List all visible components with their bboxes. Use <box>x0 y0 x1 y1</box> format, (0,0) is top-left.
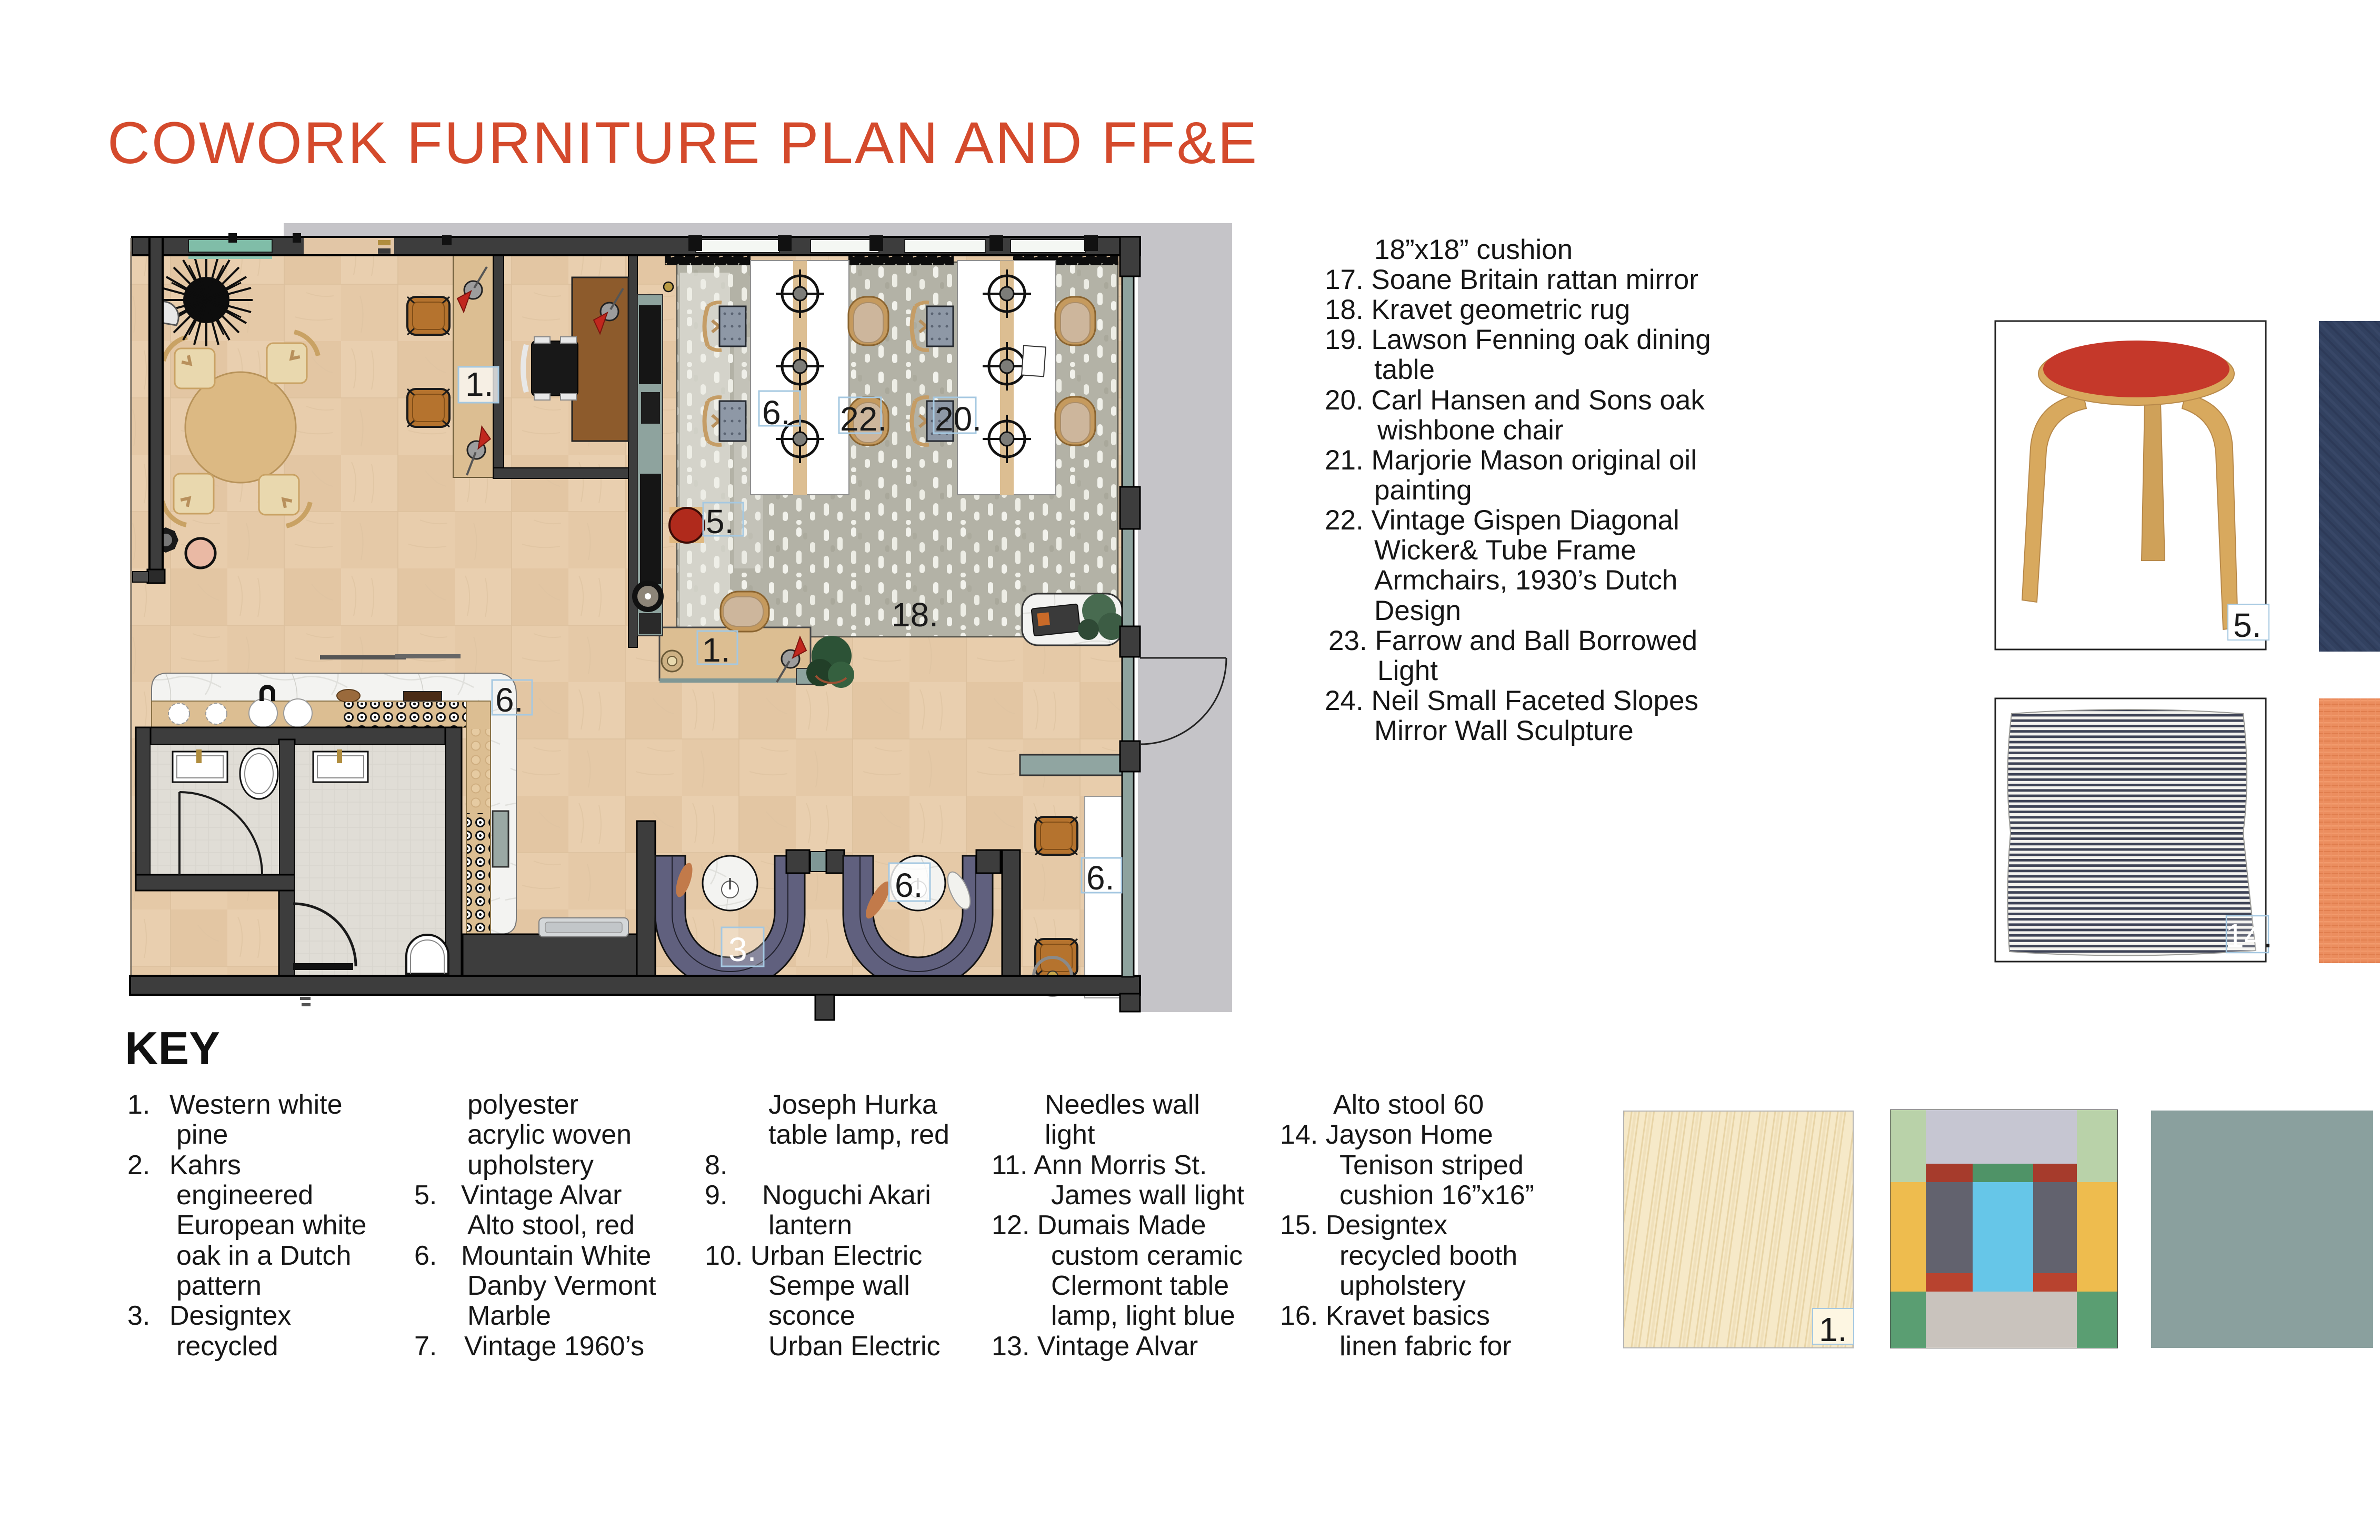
svg-text:pattern: pattern <box>176 1271 262 1301</box>
svg-text:cushion 16”x16”: cushion 16”x16” <box>1339 1180 1534 1211</box>
svg-text:7.: 7. <box>414 1331 437 1362</box>
svg-text:18. Kravet geometric rug: 18. Kravet geometric rug <box>1325 294 1630 325</box>
svg-text:Designtex: Designtex <box>169 1301 291 1331</box>
svg-text:lantern: lantern <box>768 1210 852 1241</box>
svg-text:recycled booth: recycled booth <box>1339 1241 1517 1271</box>
svg-text:20.: 20. <box>935 400 982 438</box>
svg-text:.: . <box>2263 917 2273 955</box>
svg-text:3.: 3. <box>728 931 756 968</box>
svg-text:pine: pine <box>176 1119 228 1150</box>
svg-text:Danby Vermont: Danby Vermont <box>467 1271 656 1301</box>
svg-text:10. Urban Electric: 10. Urban Electric <box>705 1241 922 1271</box>
svg-text:11. Ann Morris St.: 11. Ann Morris St. <box>992 1150 1207 1181</box>
svg-text:Light: Light <box>1377 655 1438 686</box>
svg-text:22.: 22. <box>840 400 887 438</box>
svg-text:Marble: Marble <box>467 1301 551 1331</box>
svg-text:lamp, light blue: lamp, light blue <box>1051 1301 1235 1331</box>
svg-text:Mirror Wall Sculpture: Mirror Wall Sculpture <box>1374 715 1634 746</box>
svg-text:wishbone chair: wishbone chair <box>1377 415 1564 446</box>
svg-text:Western white: Western white <box>169 1089 343 1120</box>
svg-text:custom ceramic: custom ceramic <box>1051 1241 1243 1271</box>
svg-text:6.: 6. <box>895 866 923 904</box>
svg-text:6.: 6. <box>1086 859 1114 897</box>
svg-text:Clermont table: Clermont table <box>1051 1271 1229 1301</box>
svg-text:Noguchi Akari: Noguchi Akari <box>762 1180 931 1211</box>
svg-text:3.: 3. <box>127 1301 150 1331</box>
svg-text:12. Dumais Made: 12. Dumais Made <box>992 1210 1206 1241</box>
svg-text:17. Soane Britain rattan mirro: 17. Soane Britain rattan mirror <box>1325 264 1698 295</box>
svg-text:21. Marjorie Mason original oi: 21. Marjorie Mason original oil <box>1325 445 1697 476</box>
svg-text:5.: 5. <box>706 503 734 541</box>
svg-text:COWORK FURNITURE PLAN AND FF&E: COWORK FURNITURE PLAN AND FF&E <box>107 110 1258 176</box>
svg-text:European white: European white <box>176 1210 366 1241</box>
svg-text:18”x18” cushion: 18”x18” cushion <box>1374 234 1573 265</box>
svg-text:1.: 1. <box>127 1089 150 1120</box>
svg-text:5.: 5. <box>2233 606 2261 644</box>
svg-text:upholstery: upholstery <box>1339 1271 1466 1301</box>
svg-text:Needles wall: Needles wall <box>1045 1089 1200 1120</box>
svg-text:6.: 6. <box>762 394 790 432</box>
svg-text:Sempe wall: Sempe wall <box>768 1271 910 1301</box>
svg-text:24. Neil Small Faceted Slopes: 24. Neil Small Faceted Slopes <box>1325 685 1698 716</box>
svg-text:oak in a Dutch: oak in a Dutch <box>176 1241 351 1271</box>
svg-text:table lamp, red: table lamp, red <box>768 1119 949 1150</box>
svg-text:Vintage Alvar: Vintage Alvar <box>461 1180 622 1211</box>
svg-text:Joseph Hurka: Joseph Hurka <box>768 1089 937 1120</box>
svg-text:Alto stool, red: Alto stool, red <box>467 1210 635 1241</box>
svg-text:recycled: recycled <box>176 1331 278 1362</box>
svg-text:polyester: polyester <box>467 1089 578 1120</box>
svg-text:1.: 1. <box>1819 1311 1847 1348</box>
svg-text:Tenison striped: Tenison striped <box>1339 1150 1524 1181</box>
svg-text:22. Vintage Gispen Diagonal: 22. Vintage Gispen Diagonal <box>1325 505 1679 536</box>
svg-text:8.: 8. <box>705 1150 727 1181</box>
svg-text:23. Farrow and Ball Borrowed: 23. Farrow and Ball Borrowed <box>1328 625 1697 656</box>
svg-text:Design: Design <box>1374 595 1461 626</box>
svg-text:acrylic woven: acrylic woven <box>467 1119 632 1150</box>
svg-text:19. Lawson Fenning oak dining: 19. Lawson Fenning oak dining <box>1325 324 1711 355</box>
svg-text:2.: 2. <box>127 1150 150 1181</box>
svg-text:KEY: KEY <box>125 1022 220 1074</box>
svg-text:13. Vintage Alvar: 13. Vintage Alvar <box>992 1331 1198 1362</box>
svg-text:1.: 1. <box>465 365 493 403</box>
svg-text:14. Jayson Home: 14. Jayson Home <box>1280 1119 1493 1150</box>
svg-text:Kahrs: Kahrs <box>169 1150 241 1181</box>
svg-text:Alto stool 60: Alto stool 60 <box>1333 1089 1484 1120</box>
svg-text:linen fabric for: linen fabric for <box>1339 1331 1512 1362</box>
svg-text:Wicker& Tube Frame: Wicker& Tube Frame <box>1374 535 1636 566</box>
svg-text:Urban Electric: Urban Electric <box>768 1331 941 1362</box>
svg-text:6.: 6. <box>495 681 523 719</box>
svg-text:Mountain White: Mountain White <box>461 1241 651 1271</box>
svg-text:14: 14 <box>2225 917 2263 955</box>
svg-text:James wall light: James wall light <box>1051 1180 1245 1211</box>
svg-text:1.: 1. <box>702 631 730 669</box>
svg-text:18.: 18. <box>892 596 938 634</box>
svg-text:Vintage 1960’s: Vintage 1960’s <box>464 1331 644 1362</box>
svg-text:painting: painting <box>1374 475 1472 506</box>
svg-text:light: light <box>1045 1119 1095 1150</box>
svg-text:5.: 5. <box>414 1180 437 1211</box>
svg-text:engineered: engineered <box>176 1180 313 1211</box>
svg-text:upholstery: upholstery <box>467 1150 594 1181</box>
svg-text:table: table <box>1374 354 1435 385</box>
svg-text:6.: 6. <box>414 1241 437 1271</box>
svg-text:9.: 9. <box>705 1180 727 1211</box>
svg-text:15. Designtex: 15. Designtex <box>1280 1210 1447 1241</box>
svg-text:20. Carl Hansen and Sons oak: 20. Carl Hansen and Sons oak <box>1325 385 1705 416</box>
svg-text:16. Kravet basics: 16. Kravet basics <box>1280 1301 1490 1331</box>
svg-text:Armchairs, 1930’s Dutch: Armchairs, 1930’s Dutch <box>1374 565 1677 596</box>
svg-text:sconce: sconce <box>768 1301 855 1331</box>
